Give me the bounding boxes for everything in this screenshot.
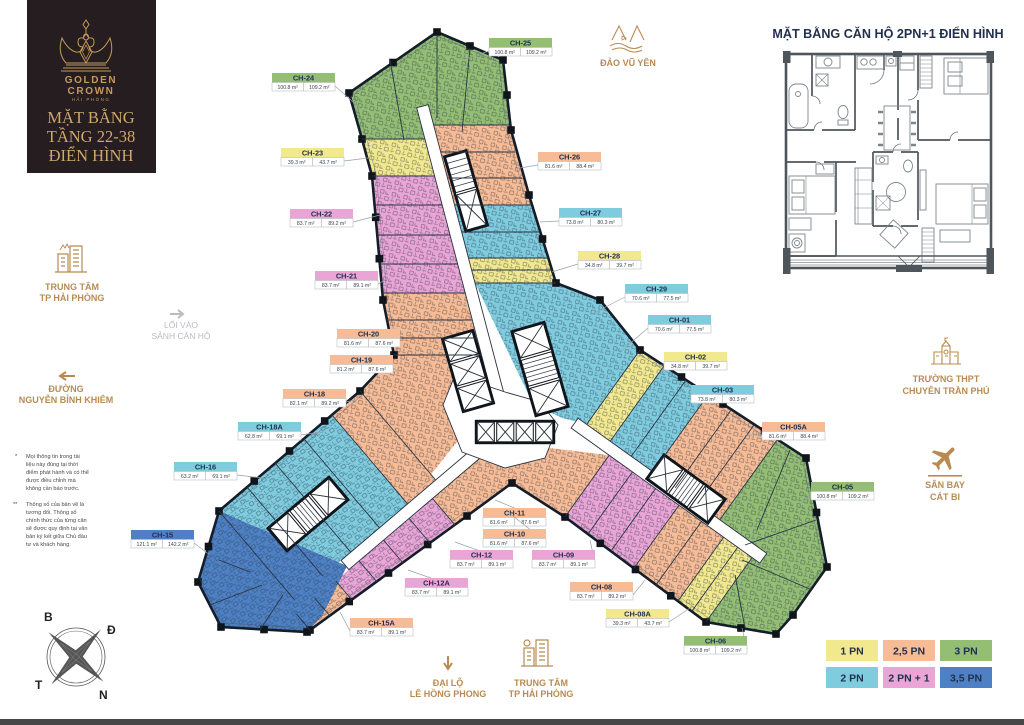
svg-text:liệu này đúng tại thời: liệu này đúng tại thời <box>26 462 78 468</box>
svg-text:89.2 m²: 89.2 m² <box>608 594 626 600</box>
svg-text:39.7 m²: 39.7 m² <box>616 263 634 269</box>
svg-text:CH-29: CH-29 <box>646 284 667 293</box>
svg-text:100.8 m²: 100.8 m² <box>816 494 837 500</box>
svg-text:GOLDEN: GOLDEN <box>65 75 117 86</box>
svg-text:CH-28: CH-28 <box>599 251 620 260</box>
svg-text:CH-22: CH-22 <box>311 209 332 218</box>
svg-text:Đ: Đ <box>107 623 116 637</box>
svg-text:Mọi thông tin trong tài: Mọi thông tin trong tài <box>26 454 80 460</box>
svg-text:89.2 m²: 89.2 m² <box>328 221 346 227</box>
svg-text:ĐẠI LỘ: ĐẠI LỘ <box>433 677 464 688</box>
svg-text:CH-06: CH-06 <box>705 636 726 645</box>
svg-text:2,5 PN: 2,5 PN <box>893 646 925 658</box>
svg-text:43.7 m²: 43.7 m² <box>319 160 337 166</box>
svg-text:43.7 m²: 43.7 m² <box>644 621 662 627</box>
svg-text:100.8 m²: 100.8 m² <box>494 50 515 56</box>
svg-text:1 PN: 1 PN <box>840 646 863 658</box>
svg-text:39.3 m²: 39.3 m² <box>613 621 631 627</box>
svg-text:MẶT BẰNG: MẶT BẰNG <box>47 108 134 127</box>
svg-text:CH-08A: CH-08A <box>624 609 651 618</box>
svg-text:CH-05: CH-05 <box>832 482 853 491</box>
svg-text:62.8 m²: 62.8 m² <box>245 434 263 440</box>
svg-text:73.8 m²: 73.8 m² <box>566 220 584 226</box>
svg-text:NGUYỄN BỈNH KHIÊM: NGUYỄN BỈNH KHIÊM <box>19 394 114 405</box>
svg-text:80.3 m²: 80.3 m² <box>597 220 615 226</box>
svg-text:CH-09: CH-09 <box>553 550 574 559</box>
svg-text:34.8 m²: 34.8 m² <box>585 263 603 269</box>
svg-text:CH-18: CH-18 <box>304 389 325 398</box>
svg-text:70.6 m²: 70.6 m² <box>632 296 650 302</box>
svg-text:CH-03: CH-03 <box>712 385 733 394</box>
svg-text:CH-12A: CH-12A <box>423 578 450 587</box>
svg-text:ĐẢO VŨ YÊN: ĐẢO VŨ YÊN <box>600 57 656 68</box>
svg-text:77.5 m²: 77.5 m² <box>686 327 704 333</box>
svg-text:CH-08: CH-08 <box>591 582 612 591</box>
svg-text:LỐI VÀO: LỐI VÀO <box>164 319 198 330</box>
svg-text:89.1 m²: 89.1 m² <box>353 283 371 289</box>
svg-text:109.2 m²: 109.2 m² <box>721 648 742 654</box>
svg-text:ĐIỂN HÌNH: ĐIỂN HÌNH <box>49 146 134 165</box>
svg-text:88.4 m²: 88.4 m² <box>800 434 818 440</box>
svg-text:81.6 m²: 81.6 m² <box>490 520 508 526</box>
svg-text:89.2 m²: 89.2 m² <box>321 401 339 407</box>
svg-text:81.6 m²: 81.6 m² <box>344 341 362 347</box>
svg-text:MẶT BẰNG CĂN HỘ 2PN+1 ĐIỂN HÌN: MẶT BẰNG CĂN HỘ 2PN+1 ĐIỂN HÌNH <box>772 26 1003 41</box>
svg-text:SẢNH CĂN HỘ: SẢNH CĂN HỘ <box>151 330 210 341</box>
svg-text:B: B <box>44 610 53 624</box>
svg-text:TP HẢI PHÒNG: TP HẢI PHÒNG <box>40 292 105 303</box>
svg-text:chính thức của từng căn: chính thức của từng căn <box>26 517 87 524</box>
svg-text:87.6 m²: 87.6 m² <box>521 520 539 526</box>
svg-text:CH-24: CH-24 <box>293 73 315 82</box>
svg-text:69.1 m²: 69.1 m² <box>276 434 294 440</box>
svg-text:34.8 m²: 34.8 m² <box>671 364 689 370</box>
svg-text:CH-15A: CH-15A <box>368 618 395 627</box>
svg-text:121.1 m²: 121.1 m² <box>136 542 157 548</box>
svg-text:CÁT BI: CÁT BI <box>930 492 960 502</box>
svg-text:CH-20: CH-20 <box>358 329 379 338</box>
svg-text:81.2 m²: 81.2 m² <box>337 367 355 373</box>
svg-text:81.6 m²: 81.6 m² <box>769 434 787 440</box>
svg-text:80.3 m²: 80.3 m² <box>729 397 747 403</box>
svg-text:CH-01: CH-01 <box>669 315 690 324</box>
svg-text:điểm phát hành và có thể: điểm phát hành và có thể <box>26 469 89 476</box>
svg-text:70.6 m²: 70.6 m² <box>655 327 673 333</box>
svg-text:CH-25: CH-25 <box>510 38 531 47</box>
svg-text:CH-02: CH-02 <box>685 352 706 361</box>
svg-text:CH-27: CH-27 <box>580 208 601 217</box>
svg-text:83.7 m²: 83.7 m² <box>357 630 375 636</box>
svg-text:TRUNG TÂM: TRUNG TÂM <box>45 281 99 292</box>
svg-text:được điều chỉnh mà: được điều chỉnh mà <box>26 477 77 484</box>
svg-text:TRUNG TÂM: TRUNG TÂM <box>514 677 568 688</box>
svg-text:CH-26: CH-26 <box>559 152 580 161</box>
svg-text:CH-11: CH-11 <box>504 508 525 517</box>
svg-text:TẦNG 22-38: TẦNG 22-38 <box>47 127 135 146</box>
svg-text:TRƯỜNG THPT: TRƯỜNG THPT <box>913 373 980 384</box>
svg-text:3 PN: 3 PN <box>954 646 977 658</box>
svg-text:T: T <box>35 678 43 692</box>
svg-text:88.4 m²: 88.4 m² <box>576 164 594 170</box>
svg-text:39.7 m²: 39.7 m² <box>702 364 720 370</box>
svg-text:100.8 m²: 100.8 m² <box>277 85 298 91</box>
svg-text:CH-12: CH-12 <box>471 550 492 559</box>
svg-text:100.8 m²: 100.8 m² <box>689 648 710 654</box>
svg-text:CH-18A: CH-18A <box>256 422 283 431</box>
svg-text:89.1 m²: 89.1 m² <box>443 590 461 596</box>
svg-text:109.2 m²: 109.2 m² <box>309 85 330 91</box>
svg-text:CH-16: CH-16 <box>195 462 216 471</box>
svg-text:tư và khách hàng.: tư và khách hàng. <box>26 542 71 548</box>
svg-text:87.6 m²: 87.6 m² <box>368 367 386 373</box>
svg-text:87.6 m²: 87.6 m² <box>521 541 539 547</box>
svg-text:CROWN: CROWN <box>68 86 115 97</box>
svg-text:83.7 m²: 83.7 m² <box>322 283 340 289</box>
svg-text:69.1 m²: 69.1 m² <box>212 474 230 480</box>
svg-text:2 PN + 1: 2 PN + 1 <box>888 673 929 685</box>
svg-text:CH-15: CH-15 <box>152 530 173 539</box>
svg-text:142.2 m²: 142.2 m² <box>168 542 189 548</box>
svg-text:Thông số của bản vẽ là: Thông số của bản vẽ là <box>26 501 85 508</box>
svg-text:SÂN BAY: SÂN BAY <box>925 479 965 490</box>
svg-text:87.6 m²: 87.6 m² <box>375 341 393 347</box>
svg-text:81.6 m²: 81.6 m² <box>490 541 508 547</box>
svg-text:2 PN: 2 PN <box>840 673 863 685</box>
svg-text:N: N <box>99 688 108 702</box>
svg-text:83.7 m²: 83.7 m² <box>297 221 315 227</box>
svg-text:89.1 m²: 89.1 m² <box>570 562 588 568</box>
svg-text:73.8 m²: 73.8 m² <box>698 397 716 403</box>
svg-text:CH-23: CH-23 <box>302 148 323 157</box>
svg-text:LÊ HỒNG PHONG: LÊ HỒNG PHONG <box>410 688 487 699</box>
svg-text:sẽ được quy định tại văn: sẽ được quy định tại văn <box>26 526 88 532</box>
svg-text:CH-10: CH-10 <box>504 529 525 538</box>
svg-text:CH-19: CH-19 <box>351 355 372 364</box>
svg-text:3,5 PN: 3,5 PN <box>950 673 982 685</box>
svg-text:89.1 m²: 89.1 m² <box>388 630 406 636</box>
svg-text:83.7 m²: 83.7 m² <box>577 594 595 600</box>
svg-text:CHUYÊN TRẦN PHÚ: CHUYÊN TRẦN PHÚ <box>902 385 989 396</box>
svg-text:109.2 m²: 109.2 m² <box>848 494 869 500</box>
svg-text:109.2 m²: 109.2 m² <box>526 50 547 56</box>
svg-text:HẢI PHÒNG: HẢI PHÒNG <box>72 96 111 102</box>
svg-text:63.2 m²: 63.2 m² <box>181 474 199 480</box>
svg-text:81.6 m²: 81.6 m² <box>545 164 563 170</box>
svg-text:tương đối. Thông số: tương đối. Thông số <box>26 510 77 516</box>
svg-text:39.3 m²: 39.3 m² <box>288 160 306 166</box>
svg-text:82.1 m²: 82.1 m² <box>290 401 308 407</box>
svg-text:CH-21: CH-21 <box>336 271 357 280</box>
svg-text:không cần báo trước.: không cần báo trước. <box>26 486 80 492</box>
svg-text:77.5 m²: 77.5 m² <box>663 296 681 302</box>
svg-text:bản ký kết giữa Chủ đầu: bản ký kết giữa Chủ đầu <box>26 533 87 540</box>
svg-text:ĐƯỜNG: ĐƯỜNG <box>48 383 83 394</box>
svg-text:83.7 m²: 83.7 m² <box>539 562 557 568</box>
svg-text:TP HẢI PHÒNG: TP HẢI PHÒNG <box>509 688 574 699</box>
svg-text:83.7 m²: 83.7 m² <box>457 562 475 568</box>
svg-text:CH-05A: CH-05A <box>780 422 807 431</box>
svg-text:89.1 m²: 89.1 m² <box>488 562 506 568</box>
svg-text:83.7 m²: 83.7 m² <box>412 590 430 596</box>
